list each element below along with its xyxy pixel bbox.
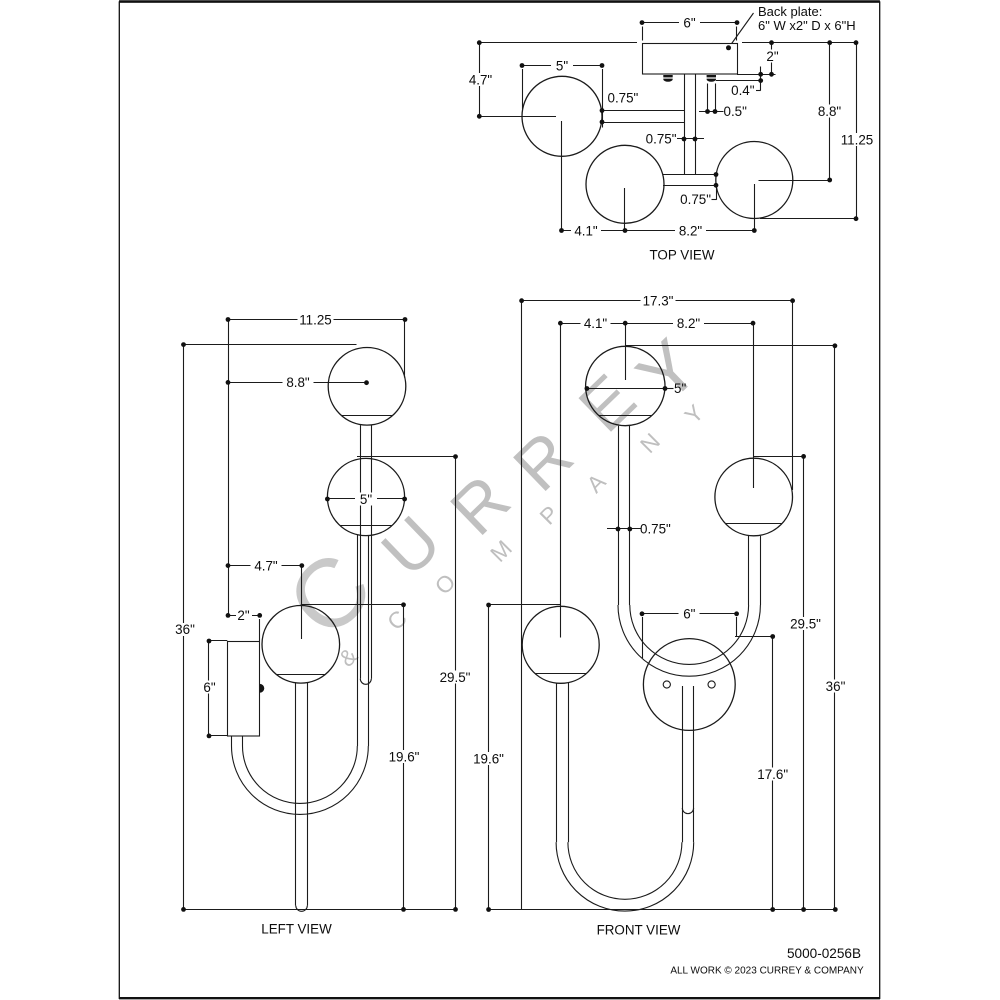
svg-text:29.5": 29.5" bbox=[790, 616, 821, 631]
svg-text:2": 2" bbox=[766, 49, 778, 64]
svg-text:FRONT VIEW: FRONT VIEW bbox=[597, 922, 681, 937]
svg-text:6" W x2" D x 6"H: 6" W x2" D x 6"H bbox=[758, 18, 856, 33]
svg-text:8.2": 8.2" bbox=[677, 316, 701, 331]
svg-text:Back plate:: Back plate: bbox=[758, 4, 822, 19]
svg-text:ALL WORK © 2023 CURREY & COMPA: ALL WORK © 2023 CURREY & COMPANY bbox=[670, 966, 864, 977]
svg-text:8.8": 8.8" bbox=[286, 375, 310, 390]
svg-text:4.7": 4.7" bbox=[254, 558, 278, 573]
svg-text:36": 36" bbox=[175, 622, 195, 637]
svg-text:4.1": 4.1" bbox=[574, 223, 598, 238]
svg-text:8.2": 8.2" bbox=[679, 223, 703, 238]
svg-text:11.25: 11.25 bbox=[841, 132, 874, 147]
svg-text:0.4": 0.4" bbox=[731, 83, 755, 98]
svg-text:19.6": 19.6" bbox=[389, 749, 420, 764]
svg-text:0.5": 0.5" bbox=[724, 104, 748, 119]
svg-text:6": 6" bbox=[683, 607, 695, 622]
svg-text:19.6": 19.6" bbox=[473, 751, 504, 766]
svg-text:5": 5" bbox=[556, 58, 568, 73]
svg-text:29.5": 29.5" bbox=[440, 670, 471, 685]
svg-text:5": 5" bbox=[360, 492, 372, 507]
svg-text:11.25: 11.25 bbox=[299, 312, 332, 327]
svg-text:5000-0256B: 5000-0256B bbox=[787, 946, 861, 961]
svg-text:17.3": 17.3" bbox=[643, 294, 674, 309]
svg-text:0.75": 0.75" bbox=[646, 132, 677, 147]
svg-text:TOP VIEW: TOP VIEW bbox=[650, 247, 715, 262]
svg-text:8.8": 8.8" bbox=[818, 104, 842, 119]
svg-text:0.75": 0.75" bbox=[640, 522, 671, 537]
svg-text:5": 5" bbox=[674, 381, 686, 396]
svg-text:4.1": 4.1" bbox=[584, 316, 608, 331]
svg-text:4.7": 4.7" bbox=[469, 72, 493, 87]
svg-text:17.6": 17.6" bbox=[757, 767, 788, 782]
svg-text:0.75": 0.75" bbox=[680, 192, 711, 207]
svg-text:6": 6" bbox=[683, 15, 695, 30]
svg-text:LEFT VIEW: LEFT VIEW bbox=[261, 921, 332, 936]
svg-text:36": 36" bbox=[826, 679, 846, 694]
svg-text:0.75": 0.75" bbox=[608, 91, 639, 106]
svg-text:2": 2" bbox=[237, 608, 249, 623]
svg-text:6": 6" bbox=[203, 680, 215, 695]
